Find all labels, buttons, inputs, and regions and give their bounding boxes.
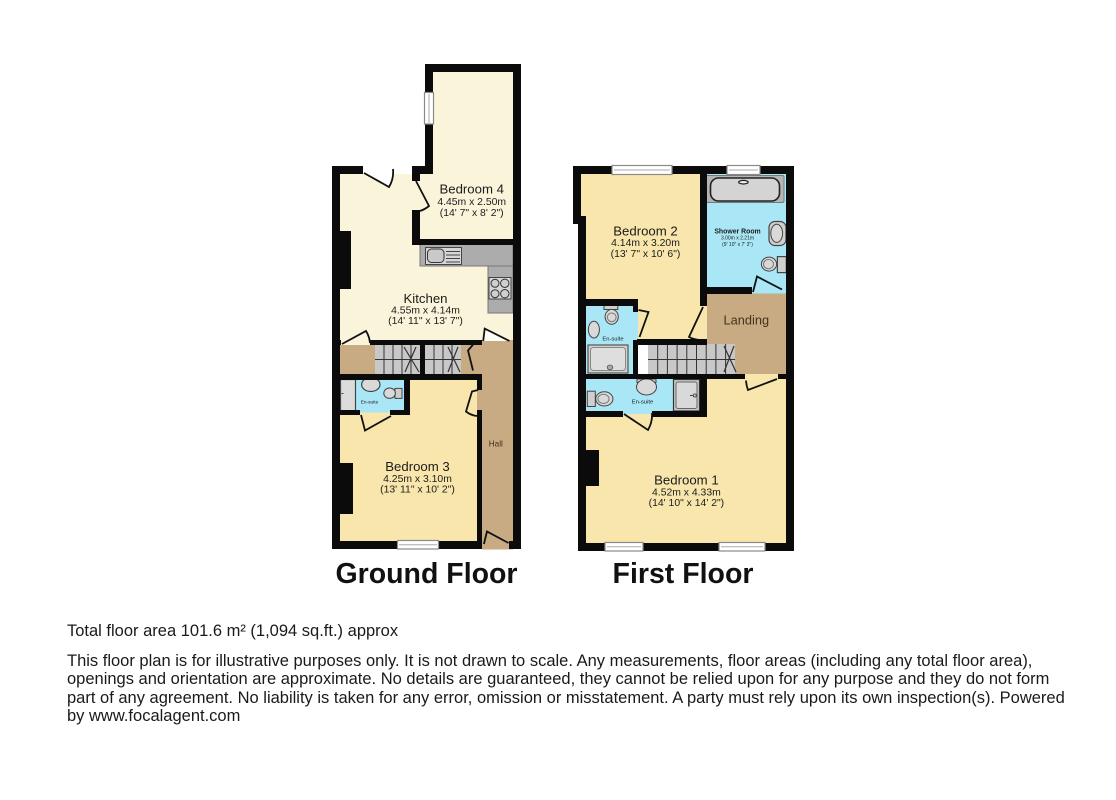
svg-text:Bedroom 2: Bedroom 2 bbox=[613, 224, 678, 239]
svg-text:(9' 10" x 7' 3"): (9' 10" x 7' 3") bbox=[722, 242, 753, 248]
svg-text:(13' 11" x 10' 2"): (13' 11" x 10' 2") bbox=[380, 485, 455, 496]
svg-text:Ground Floor: Ground Floor bbox=[335, 558, 517, 590]
svg-text:4.55m x 4.14m: 4.55m x 4.14m bbox=[391, 306, 460, 317]
svg-text:4.52m x 4.33m: 4.52m x 4.33m bbox=[652, 487, 721, 498]
svg-text:3.00m x 2.21m: 3.00m x 2.21m bbox=[721, 235, 754, 241]
svg-text:Bedroom 1: Bedroom 1 bbox=[654, 473, 719, 488]
svg-text:First Floor: First Floor bbox=[613, 558, 754, 590]
svg-text:En-suite: En-suite bbox=[602, 337, 623, 343]
svg-text:(14' 11" x 13' 7"): (14' 11" x 13' 7") bbox=[388, 316, 463, 327]
svg-text:En-suite: En-suite bbox=[361, 400, 379, 406]
svg-text:(14' 7" x 8' 2"): (14' 7" x 8' 2") bbox=[440, 208, 504, 219]
svg-text:Bedroom 3: Bedroom 3 bbox=[385, 459, 450, 474]
svg-text:Shower Room: Shower Room bbox=[714, 228, 760, 235]
svg-text:4.25m x 3.10m: 4.25m x 3.10m bbox=[383, 474, 452, 485]
svg-text:Landing: Landing bbox=[724, 313, 770, 328]
svg-text:(14' 10" x 14' 2"): (14' 10" x 14' 2") bbox=[649, 498, 724, 509]
svg-text:(13' 7" x 10' 6"): (13' 7" x 10' 6") bbox=[611, 249, 681, 260]
svg-text:Kitchen: Kitchen bbox=[404, 291, 448, 306]
svg-text:4.45m x 2.50m: 4.45m x 2.50m bbox=[437, 197, 506, 208]
svg-text:Bedroom 4: Bedroom 4 bbox=[439, 182, 504, 197]
svg-text:4.14m x 3.20m: 4.14m x 3.20m bbox=[611, 238, 680, 249]
svg-text:En-suite: En-suite bbox=[632, 400, 654, 406]
svg-text:Hall: Hall bbox=[489, 440, 503, 449]
